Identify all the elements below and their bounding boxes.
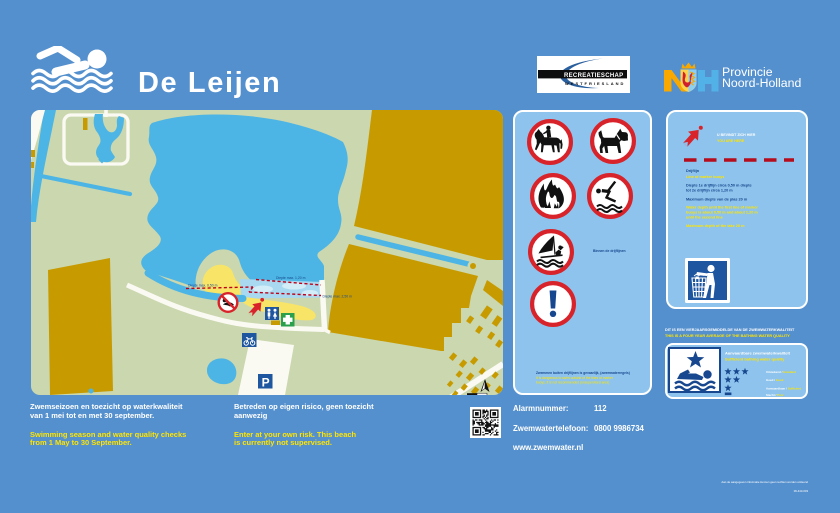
svg-text:It is dangerous to swim outsid: It is dangerous to swim outside of the l…	[536, 376, 614, 380]
svg-text:Diepte max. 0,50 m: Diepte max. 0,50 m	[188, 284, 218, 288]
svg-text:Water depth until the first li: Water depth until the first line of mark…	[686, 206, 758, 210]
svg-text:Aanvaardbare zwemwaterkwalitei: Aanvaardbare zwemwaterkwaliteit	[725, 351, 791, 356]
svg-text:Zwemmen buiten drijflijnen is: Zwemmen buiten drijflijnen is gevaarlijk…	[536, 371, 630, 375]
svg-text:tot 2e drijflijn circa 1,20 m: tot 2e drijflijn circa 1,20 m	[686, 189, 733, 193]
svg-text:Slecht / Poor: Slecht / Poor	[766, 393, 785, 397]
svg-text:Line of marker buoys: Line of marker buoys	[686, 175, 724, 179]
svg-text:YOU ARE HERE: YOU ARE HERE	[717, 139, 745, 143]
svg-text:Aanvaardbaar / Sufficient: Aanvaardbaar / Sufficient	[766, 386, 801, 390]
svg-text:Diepte max. 1,20 m: Diepte max. 1,20 m	[276, 276, 306, 280]
svg-text:Uitstekend / Excellent: Uitstekend / Excellent	[766, 370, 796, 374]
svg-text:buoys is about 0,50 m and abou: buoys is about 0,50 m and about 1,20 m	[686, 211, 758, 215]
svg-text:Goed / Good: Goed / Good	[766, 378, 784, 382]
svg-text:Sufficient bathing water quali: Sufficient bathing water quality	[725, 357, 785, 362]
svg-text:until the second line: until the second line	[686, 216, 723, 220]
svg-text:Binnen de drijflijnen: Binnen de drijflijnen	[593, 249, 626, 253]
svg-text:Maximum depth of the lake 20 m: Maximum depth of the lake 20 m	[686, 224, 745, 228]
svg-text:RECREATIESCHAP: RECREATIESCHAP	[564, 73, 623, 79]
svg-text:Diepte max. 2,50 m: Diepte max. 2,50 m	[323, 294, 353, 298]
svg-text:Diepte 1e drijflijn circa 0,50: Diepte 1e drijflijn circa 0,50 m diepte	[686, 184, 752, 188]
svg-text:buoys, it is not recommended (: buoys, it is not recommended (unsupervis…	[536, 381, 609, 385]
svg-text:WESTFRIESLAND: WESTFRIESLAND	[565, 81, 625, 86]
svg-text:U BEVINDT ZICH HIER: U BEVINDT ZICH HIER	[717, 133, 756, 137]
svg-text:P: P	[262, 375, 270, 389]
svg-text:Drijflijn: Drijflijn	[686, 169, 700, 173]
svg-text:Maximum diepte van de plas 20: Maximum diepte van de plas 20 m	[686, 198, 748, 202]
